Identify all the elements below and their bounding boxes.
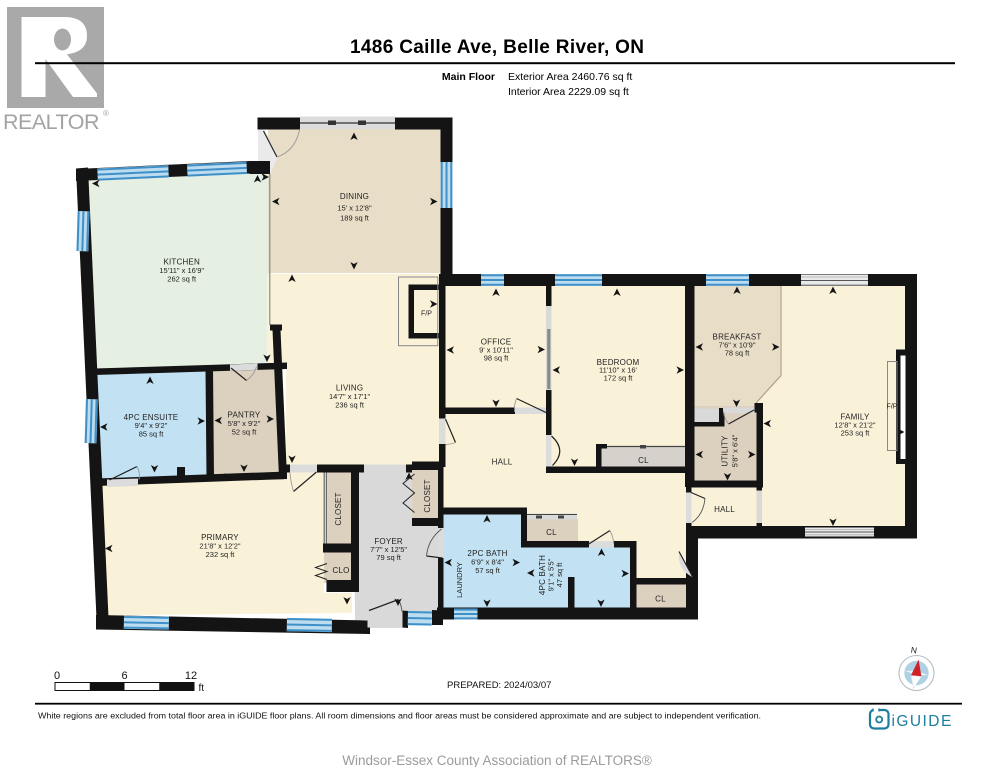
svg-text:CL: CL (546, 528, 557, 537)
svg-text:5'8" x 6'4": 5'8" x 6'4" (731, 434, 740, 467)
svg-text:LAUNDRY: LAUNDRY (455, 562, 464, 598)
svg-text:Exterior Area 2460.76 sq ft: Exterior Area 2460.76 sq ft (508, 71, 632, 83)
svg-text:DINING: DINING (340, 192, 369, 201)
svg-text:1486 Caille Ave, Belle River,: 1486 Caille Ave, Belle River, ON (350, 37, 644, 58)
svg-text:12: 12 (185, 670, 197, 682)
svg-text:CL: CL (655, 595, 666, 604)
svg-text:Interior Area 2229.09 sq ft: Interior Area 2229.09 sq ft (508, 86, 629, 98)
svg-text:79 sq ft: 79 sq ft (376, 553, 402, 562)
svg-text:85 sq ft: 85 sq ft (139, 430, 165, 439)
svg-text:57 sq ft: 57 sq ft (475, 566, 501, 575)
svg-text:6: 6 (121, 670, 127, 682)
svg-text:CLOSET: CLOSET (334, 492, 343, 525)
svg-text:78 sq ft: 78 sq ft (725, 349, 751, 358)
svg-text:ft: ft (199, 683, 205, 694)
svg-text:UTILITY: UTILITY (721, 435, 730, 467)
svg-text:White regions are excluded fro: White regions are excluded from total fl… (38, 711, 761, 721)
svg-text:CLO: CLO (332, 566, 349, 575)
svg-text:232 sq ft: 232 sq ft (206, 550, 236, 559)
svg-text:189 sq ft: 189 sq ft (340, 214, 370, 223)
svg-text:0: 0 (54, 670, 60, 682)
svg-text:®: ® (103, 109, 109, 118)
svg-text:PREPARED: 2024/03/07: PREPARED: 2024/03/07 (447, 680, 551, 691)
svg-text:F/P: F/P (887, 404, 898, 411)
svg-text:98 sq ft: 98 sq ft (484, 354, 510, 363)
svg-text:253 sq ft: 253 sq ft (841, 429, 871, 438)
svg-text:CL: CL (638, 456, 649, 465)
svg-text:HALL: HALL (714, 505, 735, 514)
svg-text:HALL: HALL (492, 458, 513, 467)
svg-text:Main Floor: Main Floor (442, 71, 495, 83)
svg-text:172 sq ft: 172 sq ft (604, 374, 634, 383)
svg-text:262 sq ft: 262 sq ft (167, 275, 197, 284)
svg-text:CLOSET: CLOSET (423, 479, 432, 512)
svg-text:F/P: F/P (421, 311, 432, 318)
svg-text:52 sq ft: 52 sq ft (232, 428, 258, 437)
svg-text:15' x 12'8": 15' x 12'8" (337, 204, 372, 213)
svg-text:Windsor-Essex County Associati: Windsor-Essex County Association of REAL… (342, 753, 652, 767)
svg-text:236 sq ft: 236 sq ft (335, 401, 365, 410)
svg-text:REALTOR: REALTOR (3, 110, 101, 134)
svg-text:47 sq ft: 47 sq ft (555, 562, 564, 588)
